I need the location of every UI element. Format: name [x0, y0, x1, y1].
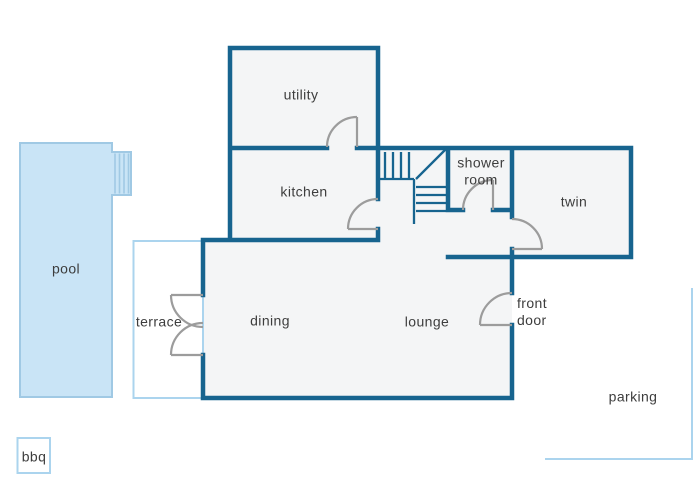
area-label-pool: pool	[52, 261, 80, 278]
room-label-utility: utility	[284, 87, 319, 104]
room-label-shower-room: shower room	[448, 154, 514, 187]
room-label-dining: dining	[250, 313, 290, 330]
area-label-terrace: terrace	[136, 314, 182, 331]
floor-plan: utility kitchen shower room twin dining …	[0, 0, 700, 500]
front-door-label: front door	[517, 295, 565, 328]
parking-outline	[545, 288, 692, 459]
building-floor	[203, 48, 631, 398]
room-label-lounge: lounge	[405, 314, 449, 331]
floor-plan-drawing	[0, 0, 700, 500]
area-label-parking: parking	[609, 389, 658, 406]
area-label-bbq: bbq	[22, 449, 47, 466]
room-label-kitchen: kitchen	[280, 184, 327, 201]
room-label-twin: twin	[561, 194, 588, 211]
